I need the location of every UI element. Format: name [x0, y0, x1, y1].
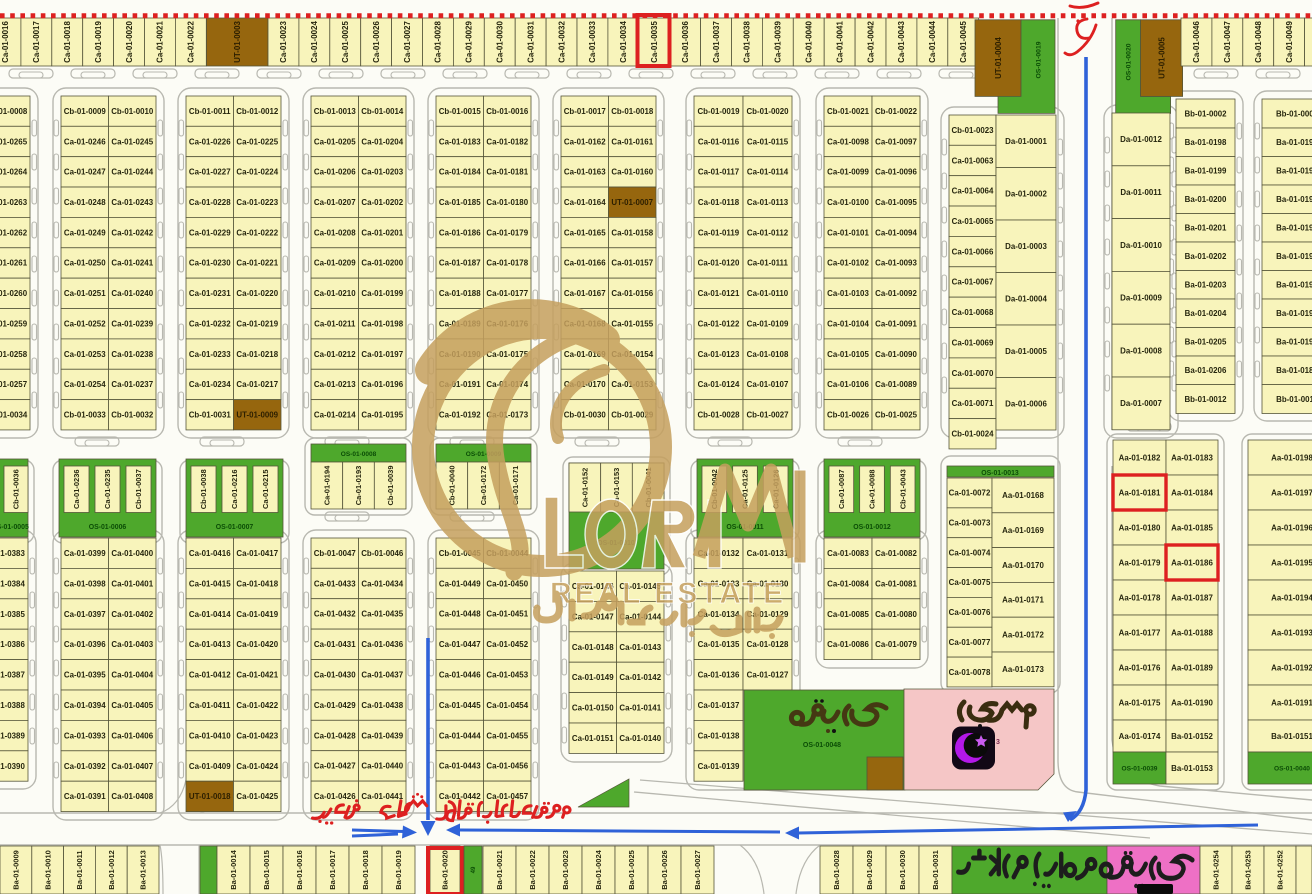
- svg-text:Cb-01-0043: Cb-01-0043: [898, 469, 907, 509]
- svg-text:Cb-01-0021: Cb-01-0021: [827, 107, 870, 116]
- svg-text:Ba-01-0030: Ba-01-0030: [898, 850, 907, 890]
- svg-text:Ca-01-0230: Ca-01-0230: [189, 259, 231, 268]
- svg-text:Cb-01-0020: Cb-01-0020: [746, 107, 789, 116]
- svg-text:Ca-01-0254: Ca-01-0254: [64, 380, 106, 389]
- svg-text:Ca-01-0035: Ca-01-0035: [650, 21, 659, 63]
- svg-text:Ca-01-0158: Ca-01-0158: [611, 228, 653, 237]
- svg-text:Ca-01-0233: Ca-01-0233: [189, 350, 231, 359]
- svg-text:Aa-01-0168: Aa-01-0168: [1002, 491, 1044, 500]
- svg-text:Ca-01-0456: Ca-01-0456: [486, 762, 528, 771]
- svg-text:UT-01-0005: UT-01-0005: [1157, 37, 1166, 79]
- svg-text:Ca-01-0112: Ca-01-0112: [747, 228, 789, 237]
- svg-text:Aa-01-0189: Aa-01-0189: [1171, 663, 1213, 672]
- svg-text:Ca-01-0259: Ca-01-0259: [0, 319, 28, 328]
- svg-text:Ca-01-0093: Ca-01-0093: [875, 259, 917, 268]
- svg-text:Ca-01-0204: Ca-01-0204: [361, 137, 403, 146]
- svg-text:Ca-01-0046: Ca-01-0046: [1192, 21, 1201, 63]
- svg-text:Aa-01-0185: Aa-01-0185: [1171, 523, 1213, 532]
- svg-text:UT-01-0003: UT-01-0003: [233, 21, 242, 63]
- svg-text:Ca-01-0227: Ca-01-0227: [189, 168, 231, 177]
- svg-text:Ca-01-0402: Ca-01-0402: [111, 610, 153, 619]
- svg-text:Ba-01-0199: Ba-01-0199: [1185, 167, 1227, 176]
- svg-text:Ca-01-0437: Ca-01-0437: [361, 670, 403, 679]
- svg-text:Ca-01-0221: Ca-01-0221: [236, 259, 278, 268]
- svg-text:Ca-01-0148: Ca-01-0148: [572, 643, 614, 652]
- svg-text:Ca-01-0115: Ca-01-0115: [747, 137, 789, 146]
- svg-text:Ca-01-0419: Ca-01-0419: [236, 610, 278, 619]
- svg-text:Ca-01-0106: Ca-01-0106: [827, 380, 869, 389]
- svg-text:Aa-01-0180: Aa-01-0180: [1119, 523, 1161, 532]
- svg-text:Ca-01-0226: Ca-01-0226: [189, 137, 231, 146]
- svg-text:Ca-01-0119: Ca-01-0119: [698, 228, 740, 237]
- svg-text:Ca-01-0239: Ca-01-0239: [111, 319, 153, 328]
- svg-text:Aa-01-0184: Aa-01-0184: [1171, 488, 1213, 497]
- svg-text:Ba-01-0011: Ba-01-0011: [75, 850, 84, 889]
- svg-text:Aa-01-0198: Aa-01-0198: [1271, 453, 1312, 462]
- svg-text:Ca-01-0025: Ca-01-0025: [341, 21, 350, 63]
- svg-text:UT-01-0009: UT-01-0009: [236, 411, 278, 420]
- svg-text:Ca-01-0429: Ca-01-0429: [314, 701, 356, 710]
- svg-text:Cb-01-0028: Cb-01-0028: [697, 411, 740, 420]
- svg-text:Ba-01-0189: Ba-01-0189: [1276, 366, 1312, 375]
- svg-text:Ca-01-0019: Ca-01-0019: [94, 21, 103, 63]
- svg-text:Ca-01-0033: Ca-01-0033: [588, 21, 597, 63]
- svg-text:Ba-01-0205: Ba-01-0205: [1185, 338, 1227, 347]
- svg-text:Ba-01-0025: Ba-01-0025: [627, 850, 636, 890]
- svg-text:Ca-01-0172: Ca-01-0172: [479, 466, 488, 506]
- svg-text:Ca-01-0234: Ca-01-0234: [189, 380, 231, 389]
- svg-text:Ca-01-0383: Ca-01-0383: [0, 549, 25, 558]
- svg-text:Ca-01-0024: Ca-01-0024: [310, 21, 319, 63]
- svg-text:Ca-01-0091: Ca-01-0091: [875, 319, 917, 328]
- svg-text:Ca-01-0393: Ca-01-0393: [64, 731, 106, 740]
- svg-text:Ca-01-0075: Ca-01-0075: [949, 578, 991, 587]
- svg-text:Ca-01-0257: Ca-01-0257: [0, 380, 28, 389]
- svg-text:Cb-01-0015: Cb-01-0015: [439, 107, 482, 116]
- svg-text:Ba-01-0202: Ba-01-0202: [1185, 252, 1227, 261]
- svg-text:Ca-01-0445: Ca-01-0445: [439, 701, 481, 710]
- svg-text:Ca-01-0135: Ca-01-0135: [698, 640, 740, 649]
- svg-text:Ca-01-0018: Ca-01-0018: [63, 21, 72, 63]
- svg-text:Ca-01-0416: Ca-01-0416: [189, 549, 231, 558]
- svg-text:Cb-01-0014: Cb-01-0014: [361, 107, 404, 116]
- svg-text:Cb-01-0030: Cb-01-0030: [564, 411, 607, 420]
- svg-text:Ba-01-0151: Ba-01-0151: [1271, 732, 1312, 741]
- svg-text:Ca-01-0452: Ca-01-0452: [486, 640, 528, 649]
- svg-text:Ca-01-0436: Ca-01-0436: [361, 640, 403, 649]
- svg-text:Ca-01-0441: Ca-01-0441: [361, 792, 403, 801]
- svg-text:Ba-01-0022: Ba-01-0022: [528, 850, 537, 890]
- svg-text:Ba-01-0009: Ba-01-0009: [12, 850, 21, 890]
- svg-text:REAL ESTATE: REAL ESTATE: [550, 577, 786, 610]
- svg-text:Ca-01-0232: Ca-01-0232: [189, 319, 231, 328]
- svg-text:Cb-01-0012: Cb-01-0012: [236, 107, 279, 116]
- svg-text:Ba-01-0023: Ba-01-0023: [561, 850, 570, 890]
- svg-text:Cb-01-0037: Cb-01-0037: [134, 469, 143, 509]
- svg-text:Ca-01-0446: Ca-01-0446: [439, 670, 481, 679]
- svg-text:Ca-01-0251: Ca-01-0251: [64, 289, 106, 298]
- svg-text:Ca-01-0066: Ca-01-0066: [952, 247, 994, 256]
- svg-text:Cb-01-0034: Cb-01-0034: [0, 411, 28, 420]
- svg-text:Aa-01-0169: Aa-01-0169: [1002, 526, 1044, 535]
- svg-text:Cb-01-0013: Cb-01-0013: [314, 107, 357, 116]
- svg-text:Ca-01-0020: Ca-01-0020: [125, 21, 134, 63]
- svg-text:Aa-01-0197: Aa-01-0197: [1271, 488, 1312, 497]
- svg-text:Ba-01-0190: Ba-01-0190: [1276, 338, 1312, 347]
- svg-text:Ca-01-0099: Ca-01-0099: [827, 168, 869, 177]
- svg-text:Ca-01-0211: Ca-01-0211: [314, 319, 356, 328]
- svg-text:Ca-01-0064: Ca-01-0064: [952, 187, 994, 196]
- svg-text:Ca-01-0028: Ca-01-0028: [434, 21, 443, 63]
- svg-text:Cb-01-0022: Cb-01-0022: [875, 107, 918, 116]
- svg-text:UT-01-0004: UT-01-0004: [994, 37, 1003, 79]
- svg-text:Ba-01-0152: Ba-01-0152: [1171, 732, 1213, 741]
- svg-text:Ca-01-0454: Ca-01-0454: [486, 701, 528, 710]
- svg-text:Ca-01-0183: Ca-01-0183: [439, 137, 481, 146]
- svg-text:Ca-01-0029: Ca-01-0029: [465, 21, 474, 63]
- svg-text:Ca-01-0390: Ca-01-0390: [0, 762, 25, 771]
- svg-text:Ba-01-0020: Ba-01-0020: [441, 850, 450, 890]
- svg-text:Ca-01-0408: Ca-01-0408: [111, 792, 153, 801]
- svg-text:Ca-01-0396: Ca-01-0396: [64, 640, 106, 649]
- svg-text:Ca-01-0116: Ca-01-0116: [698, 137, 740, 146]
- svg-text:Ca-01-0384: Ca-01-0384: [0, 579, 25, 588]
- svg-text:Ca-01-0104: Ca-01-0104: [827, 319, 869, 328]
- svg-text:Ca-01-0246: Ca-01-0246: [64, 137, 106, 146]
- svg-text:Ca-01-0261: Ca-01-0261: [0, 259, 28, 268]
- svg-text:Ca-01-0439: Ca-01-0439: [361, 731, 403, 740]
- svg-text:Ca-01-0092: Ca-01-0092: [875, 289, 917, 298]
- svg-text:Ca-01-0418: Ca-01-0418: [236, 579, 278, 588]
- svg-text:Ba-01-0015: Ba-01-0015: [262, 850, 271, 890]
- svg-text:Ca-01-0068: Ca-01-0068: [952, 308, 994, 317]
- svg-text:Ca-01-0077: Ca-01-0077: [949, 638, 991, 647]
- svg-text:Cb-01-0047: Cb-01-0047: [314, 549, 357, 558]
- svg-text:Ca-01-0209: Ca-01-0209: [314, 259, 356, 268]
- svg-text:Cb-01-0024: Cb-01-0024: [951, 430, 994, 439]
- svg-text:Ba-01-0201: Ba-01-0201: [1185, 224, 1227, 233]
- svg-text:Ca-01-0041: Ca-01-0041: [835, 21, 844, 63]
- svg-text:Ca-01-0404: Ca-01-0404: [111, 671, 153, 680]
- svg-text:Da-01-0012: Da-01-0012: [1120, 135, 1162, 144]
- svg-text:Aa-01-0182: Aa-01-0182: [1119, 453, 1161, 462]
- svg-text:Ba-01-0196: Ba-01-0196: [1276, 167, 1312, 176]
- svg-text:Cb-01-0032: Cb-01-0032: [111, 411, 154, 420]
- svg-text:Cb-01-0010: Cb-01-0010: [111, 107, 154, 116]
- svg-text:Ca-01-0070: Ca-01-0070: [952, 369, 994, 378]
- svg-text:Ca-01-0032: Ca-01-0032: [557, 21, 566, 63]
- svg-text:Ca-01-0155: Ca-01-0155: [611, 319, 653, 328]
- svg-text:Ca-01-0253: Ca-01-0253: [64, 350, 106, 359]
- svg-text:Cb-01-0033: Cb-01-0033: [64, 411, 107, 420]
- svg-text:Ca-01-0433: Ca-01-0433: [314, 579, 356, 588]
- svg-text:Ca-01-0152: Ca-01-0152: [580, 468, 589, 508]
- svg-text:Ca-01-0043: Ca-01-0043: [897, 21, 906, 63]
- svg-text:Ba-01-0192: Ba-01-0192: [1276, 281, 1312, 290]
- svg-text:Ca-01-0198: Ca-01-0198: [361, 319, 403, 328]
- svg-text:Aa-01-0188: Aa-01-0188: [1171, 628, 1213, 637]
- svg-text:Aa-01-0192: Aa-01-0192: [1271, 663, 1312, 672]
- svg-text:Ca-01-0258: Ca-01-0258: [0, 350, 28, 359]
- svg-text:Ca-01-0194: Ca-01-0194: [322, 465, 331, 505]
- svg-text:Da-01-0007: Da-01-0007: [1120, 399, 1162, 408]
- svg-text:Ca-01-0223: Ca-01-0223: [236, 198, 278, 207]
- svg-text:Ca-01-0455: Ca-01-0455: [486, 731, 528, 740]
- svg-text:Aa-01-0196: Aa-01-0196: [1271, 523, 1312, 532]
- svg-text:Ca-01-0224: Ca-01-0224: [236, 168, 278, 177]
- svg-text:Ca-01-0084: Ca-01-0084: [827, 579, 869, 588]
- svg-text:Ca-01-0090: Ca-01-0090: [875, 350, 917, 359]
- svg-text:Ca-01-0109: Ca-01-0109: [747, 319, 789, 328]
- svg-text:Cb-01-0016: Cb-01-0016: [486, 107, 529, 116]
- svg-text:Ca-01-0444: Ca-01-0444: [439, 731, 481, 740]
- svg-text:Ca-01-0391: Ca-01-0391: [64, 792, 106, 801]
- svg-text:Ca-01-0225: Ca-01-0225: [236, 137, 278, 146]
- svg-text:Ca-01-0021: Ca-01-0021: [156, 21, 165, 63]
- svg-text:Ca-01-0247: Ca-01-0247: [64, 168, 106, 177]
- svg-text:Ca-01-0026: Ca-01-0026: [372, 21, 381, 63]
- svg-text:Ca-01-0181: Ca-01-0181: [486, 168, 528, 177]
- svg-text:Ca-01-0085: Ca-01-0085: [827, 610, 869, 619]
- svg-text:Ca-01-0425: Ca-01-0425: [236, 792, 278, 801]
- svg-text:Ba-01-0016: Ba-01-0016: [295, 850, 304, 890]
- svg-text:Ca-01-0262: Ca-01-0262: [0, 228, 28, 237]
- svg-text:Ca-01-0083: Ca-01-0083: [827, 549, 869, 558]
- svg-text:Ca-01-0063: Ca-01-0063: [952, 156, 994, 165]
- svg-text:Ca-01-0192: Ca-01-0192: [439, 411, 481, 420]
- svg-text:Ba-01-0014: Ba-01-0014: [229, 849, 238, 889]
- svg-text:Ca-01-0166: Ca-01-0166: [564, 259, 606, 268]
- svg-text:Aa-01-0195: Aa-01-0195: [1271, 558, 1312, 567]
- svg-text:Cb-01-0036: Cb-01-0036: [12, 469, 21, 509]
- svg-text:Aa-01-0178: Aa-01-0178: [1119, 593, 1161, 602]
- svg-text:Ca-01-0430: Ca-01-0430: [314, 670, 356, 679]
- svg-text:Ca-01-0415: Ca-01-0415: [189, 579, 231, 588]
- svg-text:Ca-01-0141: Ca-01-0141: [619, 704, 661, 713]
- svg-text:Cb-01-0040: Cb-01-0040: [447, 465, 456, 505]
- svg-text:Ca-01-0248: Ca-01-0248: [64, 198, 106, 207]
- svg-text:Ca-01-0435: Ca-01-0435: [361, 610, 403, 619]
- svg-text:Ca-01-0101: Ca-01-0101: [827, 228, 869, 237]
- svg-text:Ca-01-0100: Ca-01-0100: [827, 198, 869, 207]
- svg-text:Cb-01-0038: Cb-01-0038: [199, 469, 208, 509]
- svg-text:Cb-01-0026: Cb-01-0026: [827, 411, 870, 420]
- svg-text:Da-01-0005: Da-01-0005: [1005, 347, 1047, 356]
- svg-text:Ca-01-0121: Ca-01-0121: [698, 289, 740, 298]
- svg-text:Ca-01-0205: Ca-01-0205: [314, 137, 356, 146]
- svg-text:Ca-01-0137: Ca-01-0137: [698, 701, 740, 710]
- svg-text:OS-01-0048: OS-01-0048: [803, 742, 841, 749]
- svg-text:Ca-01-0265: Ca-01-0265: [0, 137, 28, 146]
- svg-text:Ca-01-0216: Ca-01-0216: [230, 469, 239, 509]
- svg-text:Aa-01-0176: Aa-01-0176: [1119, 663, 1161, 672]
- svg-text:Ba-01-0012: Ba-01-0012: [107, 850, 116, 890]
- svg-text:Ca-01-0264: Ca-01-0264: [0, 168, 28, 177]
- svg-text:Cb-01-0019: Cb-01-0019: [697, 107, 740, 116]
- svg-text:Ca-01-0231: Ca-01-0231: [189, 289, 231, 298]
- svg-text:Ca-01-0149: Ca-01-0149: [572, 673, 614, 682]
- svg-text:Ca-01-0420: Ca-01-0420: [236, 640, 278, 649]
- svg-text:Ca-01-0210: Ca-01-0210: [314, 289, 356, 298]
- svg-text:Ca-01-0424: Ca-01-0424: [236, 762, 278, 771]
- svg-text:Ba-01-0027: Ba-01-0027: [693, 850, 702, 890]
- svg-text:Ca-01-0118: Ca-01-0118: [698, 198, 740, 207]
- svg-text:UT-01-0018: UT-01-0018: [189, 792, 231, 801]
- svg-text:Ca-01-0208: Ca-01-0208: [314, 228, 356, 237]
- svg-text:Ba-01-0203: Ba-01-0203: [1185, 281, 1227, 290]
- svg-text:Ca-01-0114: Ca-01-0114: [747, 168, 789, 177]
- svg-text:OS-01-0019: OS-01-0019: [1036, 41, 1043, 78]
- svg-text:OS-01-0013: OS-01-0013: [981, 470, 1019, 477]
- svg-text:Cb-01-0046: Cb-01-0046: [361, 549, 404, 558]
- svg-text:Ca-01-0451: Ca-01-0451: [486, 610, 528, 619]
- svg-text:Ca-01-0027: Ca-01-0027: [403, 21, 412, 63]
- svg-text:Ca-01-0076: Ca-01-0076: [949, 608, 991, 617]
- svg-text:Ca-01-0431: Ca-01-0431: [314, 640, 356, 649]
- svg-text:Ca-01-0067: Ca-01-0067: [952, 278, 994, 287]
- svg-text:Ca-01-0228: Ca-01-0228: [189, 198, 231, 207]
- svg-text:Ca-01-0113: Ca-01-0113: [747, 198, 789, 207]
- svg-text:Ca-01-0048: Ca-01-0048: [1254, 21, 1263, 63]
- svg-text:Ca-01-0406: Ca-01-0406: [111, 731, 153, 740]
- svg-text:Ca-01-0073: Ca-01-0073: [949, 519, 991, 528]
- svg-text:Ca-01-0427: Ca-01-0427: [314, 762, 356, 771]
- svg-text:Ca-01-0386: Ca-01-0386: [0, 640, 25, 649]
- svg-text:Ca-01-0142: Ca-01-0142: [619, 673, 661, 682]
- svg-text:Ca-01-0213: Ca-01-0213: [314, 380, 356, 389]
- svg-text:Da-01-0003: Da-01-0003: [1005, 242, 1047, 251]
- svg-text:Ba-01-0017: Ba-01-0017: [328, 850, 337, 890]
- svg-text:Ca-01-0042: Ca-01-0042: [866, 21, 875, 63]
- svg-text:Ca-01-0389: Ca-01-0389: [0, 731, 25, 740]
- svg-text:Aa-01-0170: Aa-01-0170: [1002, 561, 1044, 570]
- svg-text:Ca-01-0426: Ca-01-0426: [314, 792, 356, 801]
- svg-text:Ba-01-0028: Ba-01-0028: [832, 850, 841, 890]
- svg-text:49: 49: [471, 866, 477, 873]
- svg-text:Ca-01-0411: Ca-01-0411: [189, 701, 231, 710]
- svg-text:Ca-01-0186: Ca-01-0186: [439, 228, 481, 237]
- svg-text:Ca-01-0401: Ca-01-0401: [111, 579, 153, 588]
- svg-text:Ca-01-0087: Ca-01-0087: [837, 469, 846, 509]
- svg-text:Ca-01-0016: Ca-01-0016: [1, 21, 10, 63]
- svg-text:Ca-01-0107: Ca-01-0107: [747, 380, 789, 389]
- svg-text:Ca-01-0243: Ca-01-0243: [111, 198, 153, 207]
- svg-text:Da-01-0011: Da-01-0011: [1120, 188, 1162, 197]
- svg-text:Ba-01-0153: Ba-01-0153: [1171, 764, 1213, 773]
- svg-text:Ba-01-0191: Ba-01-0191: [1276, 309, 1312, 318]
- svg-text:Ba-01-0254: Ba-01-0254: [1212, 849, 1221, 889]
- svg-text:Ca-01-0162: Ca-01-0162: [564, 137, 606, 146]
- svg-text:Ca-01-0163: Ca-01-0163: [564, 168, 606, 177]
- svg-text:Ca-01-0207: Ca-01-0207: [314, 198, 356, 207]
- svg-text:Bb-01-0002: Bb-01-0002: [1184, 109, 1227, 118]
- svg-text:OS-01-0005: OS-01-0005: [0, 524, 29, 531]
- svg-text:Ca-01-0143: Ca-01-0143: [619, 643, 661, 652]
- svg-text:Cb-01-0009: Cb-01-0009: [64, 107, 107, 116]
- svg-text:Ca-01-0188: Ca-01-0188: [439, 289, 481, 298]
- svg-text:Ca-01-0031: Ca-01-0031: [526, 21, 535, 63]
- svg-text:Ca-01-0017: Ca-01-0017: [32, 21, 41, 63]
- svg-text:Ca-01-0138: Ca-01-0138: [698, 731, 740, 740]
- svg-text:Ca-01-0156: Ca-01-0156: [611, 289, 653, 298]
- svg-text:Bb-01-0011: Bb-01-0011: [1276, 395, 1312, 404]
- svg-text:Ca-01-0030: Ca-01-0030: [496, 21, 505, 63]
- svg-text:Aa-01-0194: Aa-01-0194: [1271, 593, 1312, 602]
- svg-text:Ca-01-0182: Ca-01-0182: [486, 137, 528, 146]
- svg-text:Ca-01-0201: Ca-01-0201: [361, 228, 403, 237]
- svg-text:Ba-01-0021: Ba-01-0021: [495, 850, 504, 890]
- svg-text:Cb-01-0039: Cb-01-0039: [386, 465, 395, 505]
- svg-text:Ca-01-0185: Ca-01-0185: [439, 198, 481, 207]
- svg-text:Ca-01-0108: Ca-01-0108: [747, 350, 789, 359]
- svg-text:Da-01-0002: Da-01-0002: [1005, 190, 1047, 199]
- svg-text:Ca-01-0397: Ca-01-0397: [64, 610, 106, 619]
- svg-text:Ca-01-0157: Ca-01-0157: [611, 259, 653, 268]
- svg-text:Ca-01-0124: Ca-01-0124: [698, 380, 740, 389]
- svg-text:Bb-01-0012: Bb-01-0012: [1184, 395, 1227, 404]
- svg-text:Ca-01-0120: Ca-01-0120: [698, 259, 740, 268]
- svg-text:Ca-01-0238: Ca-01-0238: [111, 350, 153, 359]
- svg-text:Aa-01-0177: Aa-01-0177: [1119, 628, 1161, 637]
- svg-text:Ca-01-0237: Ca-01-0237: [111, 380, 153, 389]
- svg-text:Aa-01-0172: Aa-01-0172: [1002, 630, 1044, 639]
- svg-text:Ba-01-0198: Ba-01-0198: [1185, 138, 1227, 147]
- svg-text:Ba-01-0194: Ba-01-0194: [1276, 224, 1312, 233]
- svg-text:Ca-01-0428: Ca-01-0428: [314, 731, 356, 740]
- svg-text:Ba-01-0252: Ba-01-0252: [1276, 850, 1285, 890]
- svg-text:Ba-01-0193: Ba-01-0193: [1276, 252, 1312, 261]
- svg-text:Cb-01-0027: Cb-01-0027: [746, 411, 789, 420]
- svg-text:Ca-01-0244: Ca-01-0244: [111, 168, 153, 177]
- svg-text:Ca-01-0417: Ca-01-0417: [236, 549, 278, 558]
- svg-text:Ca-01-0072: Ca-01-0072: [949, 489, 991, 498]
- svg-text:Ca-01-0131: Ca-01-0131: [747, 549, 789, 558]
- svg-text:Ba-01-0200: Ba-01-0200: [1185, 195, 1227, 204]
- svg-text:Ca-01-0220: Ca-01-0220: [236, 289, 278, 298]
- svg-text:Ca-01-0405: Ca-01-0405: [111, 701, 153, 710]
- svg-text:Ca-01-0241: Ca-01-0241: [111, 259, 153, 268]
- svg-text:Cb-01-0023: Cb-01-0023: [951, 126, 994, 135]
- svg-text:Cb-01-0025: Cb-01-0025: [875, 411, 918, 420]
- svg-text:Ca-01-0040: Ca-01-0040: [805, 21, 814, 63]
- svg-text:Ba-01-0195: Ba-01-0195: [1276, 195, 1312, 204]
- svg-text:Ca-01-0206: Ca-01-0206: [314, 168, 356, 177]
- svg-text:Ca-01-0235: Ca-01-0235: [103, 469, 112, 509]
- svg-text:Ca-01-0423: Ca-01-0423: [236, 731, 278, 740]
- svg-text:Aa-01-0191: Aa-01-0191: [1271, 698, 1312, 707]
- svg-text:Ca-01-0215: Ca-01-0215: [261, 469, 270, 509]
- svg-text:Ca-01-0388: Ca-01-0388: [0, 701, 25, 710]
- svg-text:OS-01-0007: OS-01-0007: [216, 524, 254, 531]
- svg-text:Ca-01-0160: Ca-01-0160: [611, 168, 653, 177]
- svg-text:Ca-01-0263: Ca-01-0263: [0, 198, 28, 207]
- svg-text:Ca-01-0222: Ca-01-0222: [236, 228, 278, 237]
- svg-text:Aa-01-0179: Aa-01-0179: [1119, 558, 1161, 567]
- svg-text:Ca-01-0086: Ca-01-0086: [827, 640, 869, 649]
- svg-text:Aa-01-0187: Aa-01-0187: [1171, 593, 1213, 602]
- svg-text:Ca-01-0080: Ca-01-0080: [875, 610, 917, 619]
- svg-text:Ca-01-0078: Ca-01-0078: [949, 668, 991, 677]
- svg-text:UT-01-0007: UT-01-0007: [611, 198, 653, 207]
- svg-text:Ba-01-0197: Ba-01-0197: [1276, 138, 1312, 147]
- svg-text:Cb-01-0011: Cb-01-0011: [189, 107, 231, 116]
- svg-text:Ca-01-0398: Ca-01-0398: [64, 579, 106, 588]
- svg-text:Ca-01-0412: Ca-01-0412: [189, 671, 231, 680]
- svg-text:Bb-01-0003: Bb-01-0003: [1276, 109, 1312, 118]
- svg-text:Ca-01-0252: Ca-01-0252: [64, 319, 106, 328]
- svg-text:Ca-01-0095: Ca-01-0095: [875, 198, 917, 207]
- svg-text:Ca-01-0218: Ca-01-0218: [236, 350, 278, 359]
